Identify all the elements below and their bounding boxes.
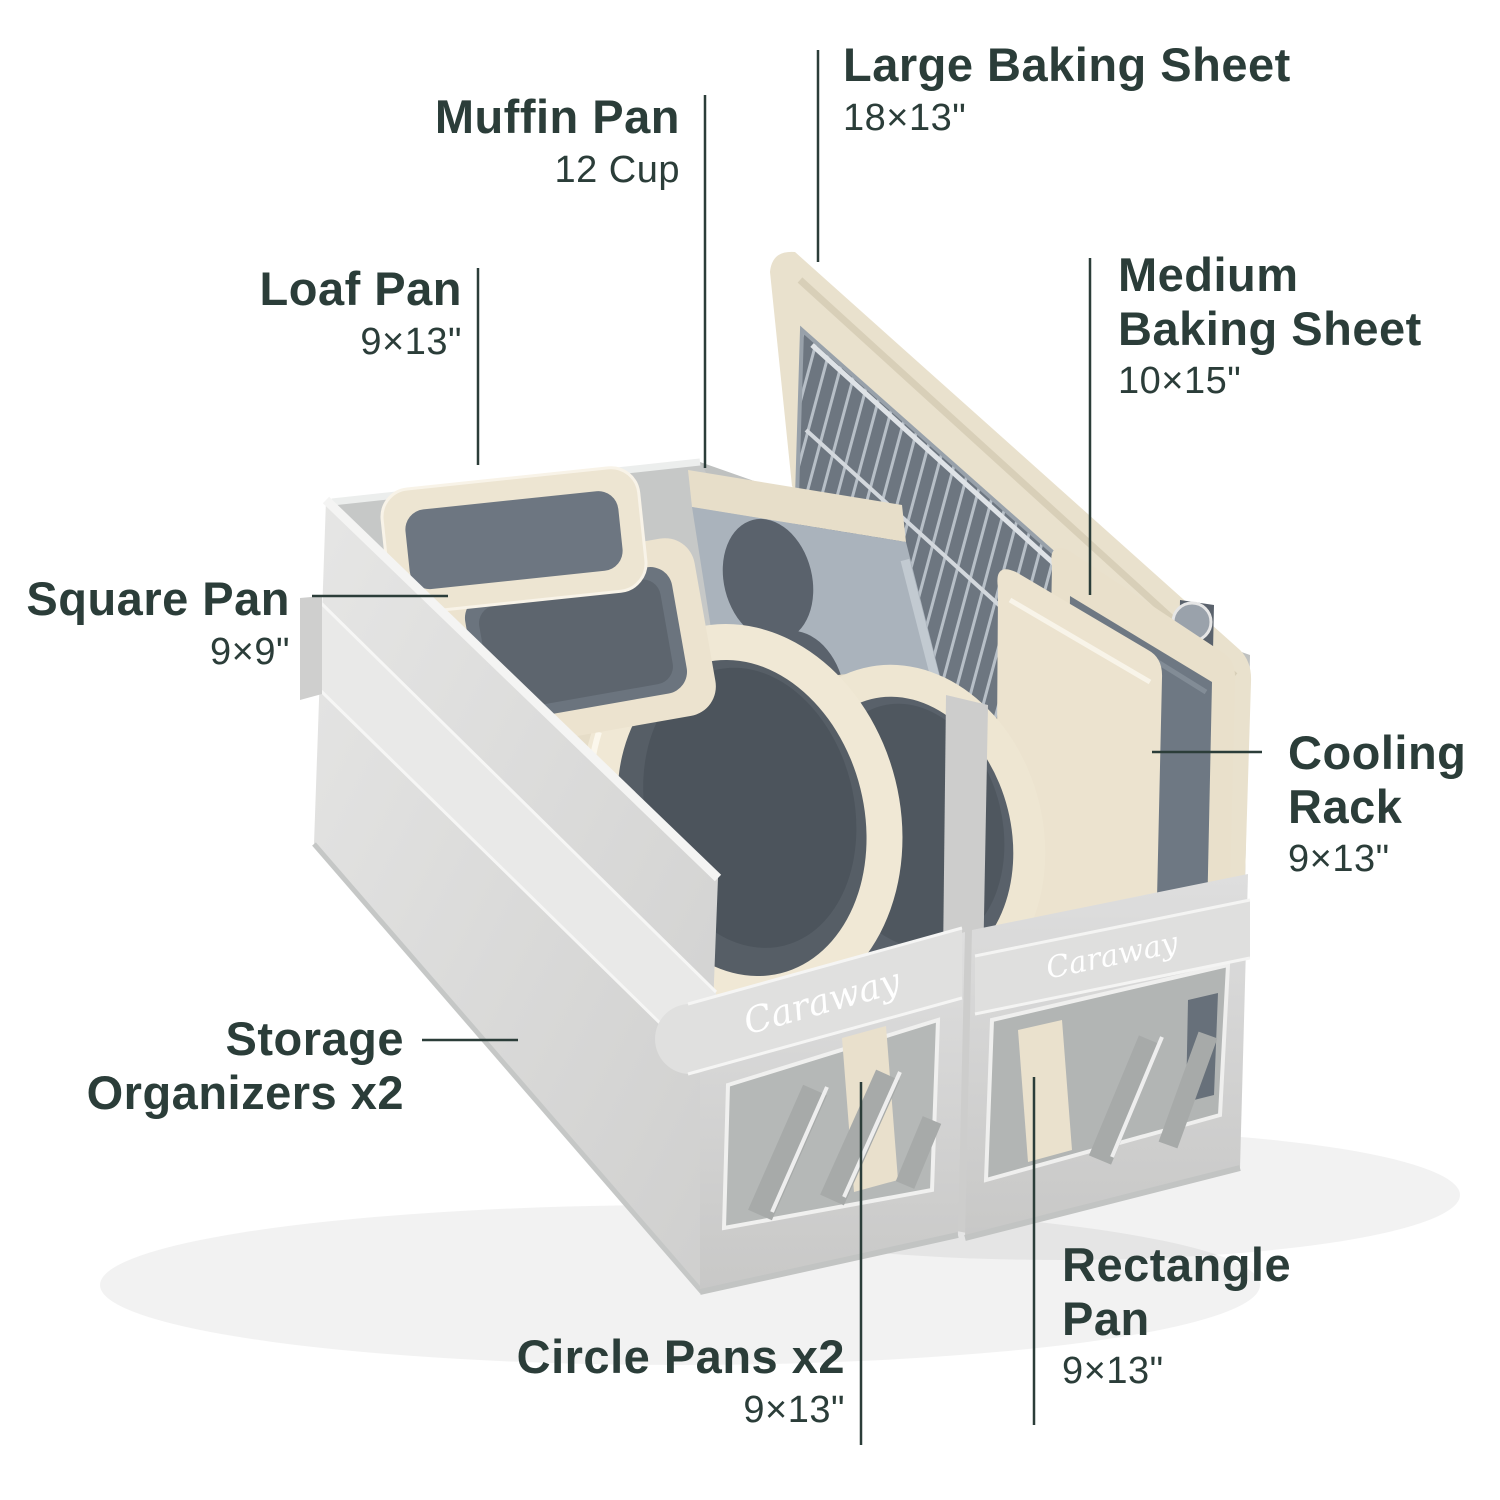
square-pan-label: Square Pan: [10, 572, 290, 626]
muffin-pan-label: Muffin Pan: [280, 90, 680, 144]
callout-circle-pans: Circle Pans x2 9×13": [465, 1330, 845, 1431]
product-diagram: Caraway Caraway: [0, 0, 1500, 1500]
loaf-pan-size: 9×13": [162, 321, 462, 364]
large-baking-sheet-label: Large Baking Sheet: [843, 38, 1313, 92]
callout-large-baking-sheet: Large Baking Sheet 18×13": [843, 38, 1313, 139]
rectangle-pan-label: Rectangle Pan: [1062, 1238, 1312, 1345]
callout-cooling-rack: Cooling Rack 9×13": [1288, 726, 1488, 881]
circle-pans-label: Circle Pans x2: [465, 1330, 845, 1384]
callout-medium-baking-sheet: Medium Baking Sheet 10×15": [1118, 248, 1428, 403]
medium-baking-sheet-size: 10×15": [1118, 360, 1428, 403]
callout-square-pan: Square Pan 9×9": [10, 572, 290, 673]
rectangle-pan-size: 9×13": [1062, 1350, 1312, 1393]
medium-baking-sheet-label: Medium Baking Sheet: [1118, 248, 1428, 355]
callout-rectangle-pan: Rectangle Pan 9×13": [1062, 1238, 1312, 1393]
large-baking-sheet-size: 18×13": [843, 97, 1313, 140]
storage-organizers-label: Storage Organizers x2: [64, 1012, 404, 1119]
cooling-rack-size: 9×13": [1288, 838, 1488, 881]
cooling-rack-label: Cooling Rack: [1288, 726, 1488, 833]
muffin-pan-size: 12 Cup: [280, 149, 680, 192]
callout-loaf-pan: Loaf Pan 9×13": [162, 262, 462, 363]
callout-muffin-pan: Muffin Pan 12 Cup: [280, 90, 680, 191]
circle-pans-size: 9×13": [465, 1389, 845, 1432]
square-pan-size: 9×9": [10, 631, 290, 674]
loaf-pan-label: Loaf Pan: [162, 262, 462, 316]
callout-storage-organizers: Storage Organizers x2: [64, 1012, 404, 1119]
